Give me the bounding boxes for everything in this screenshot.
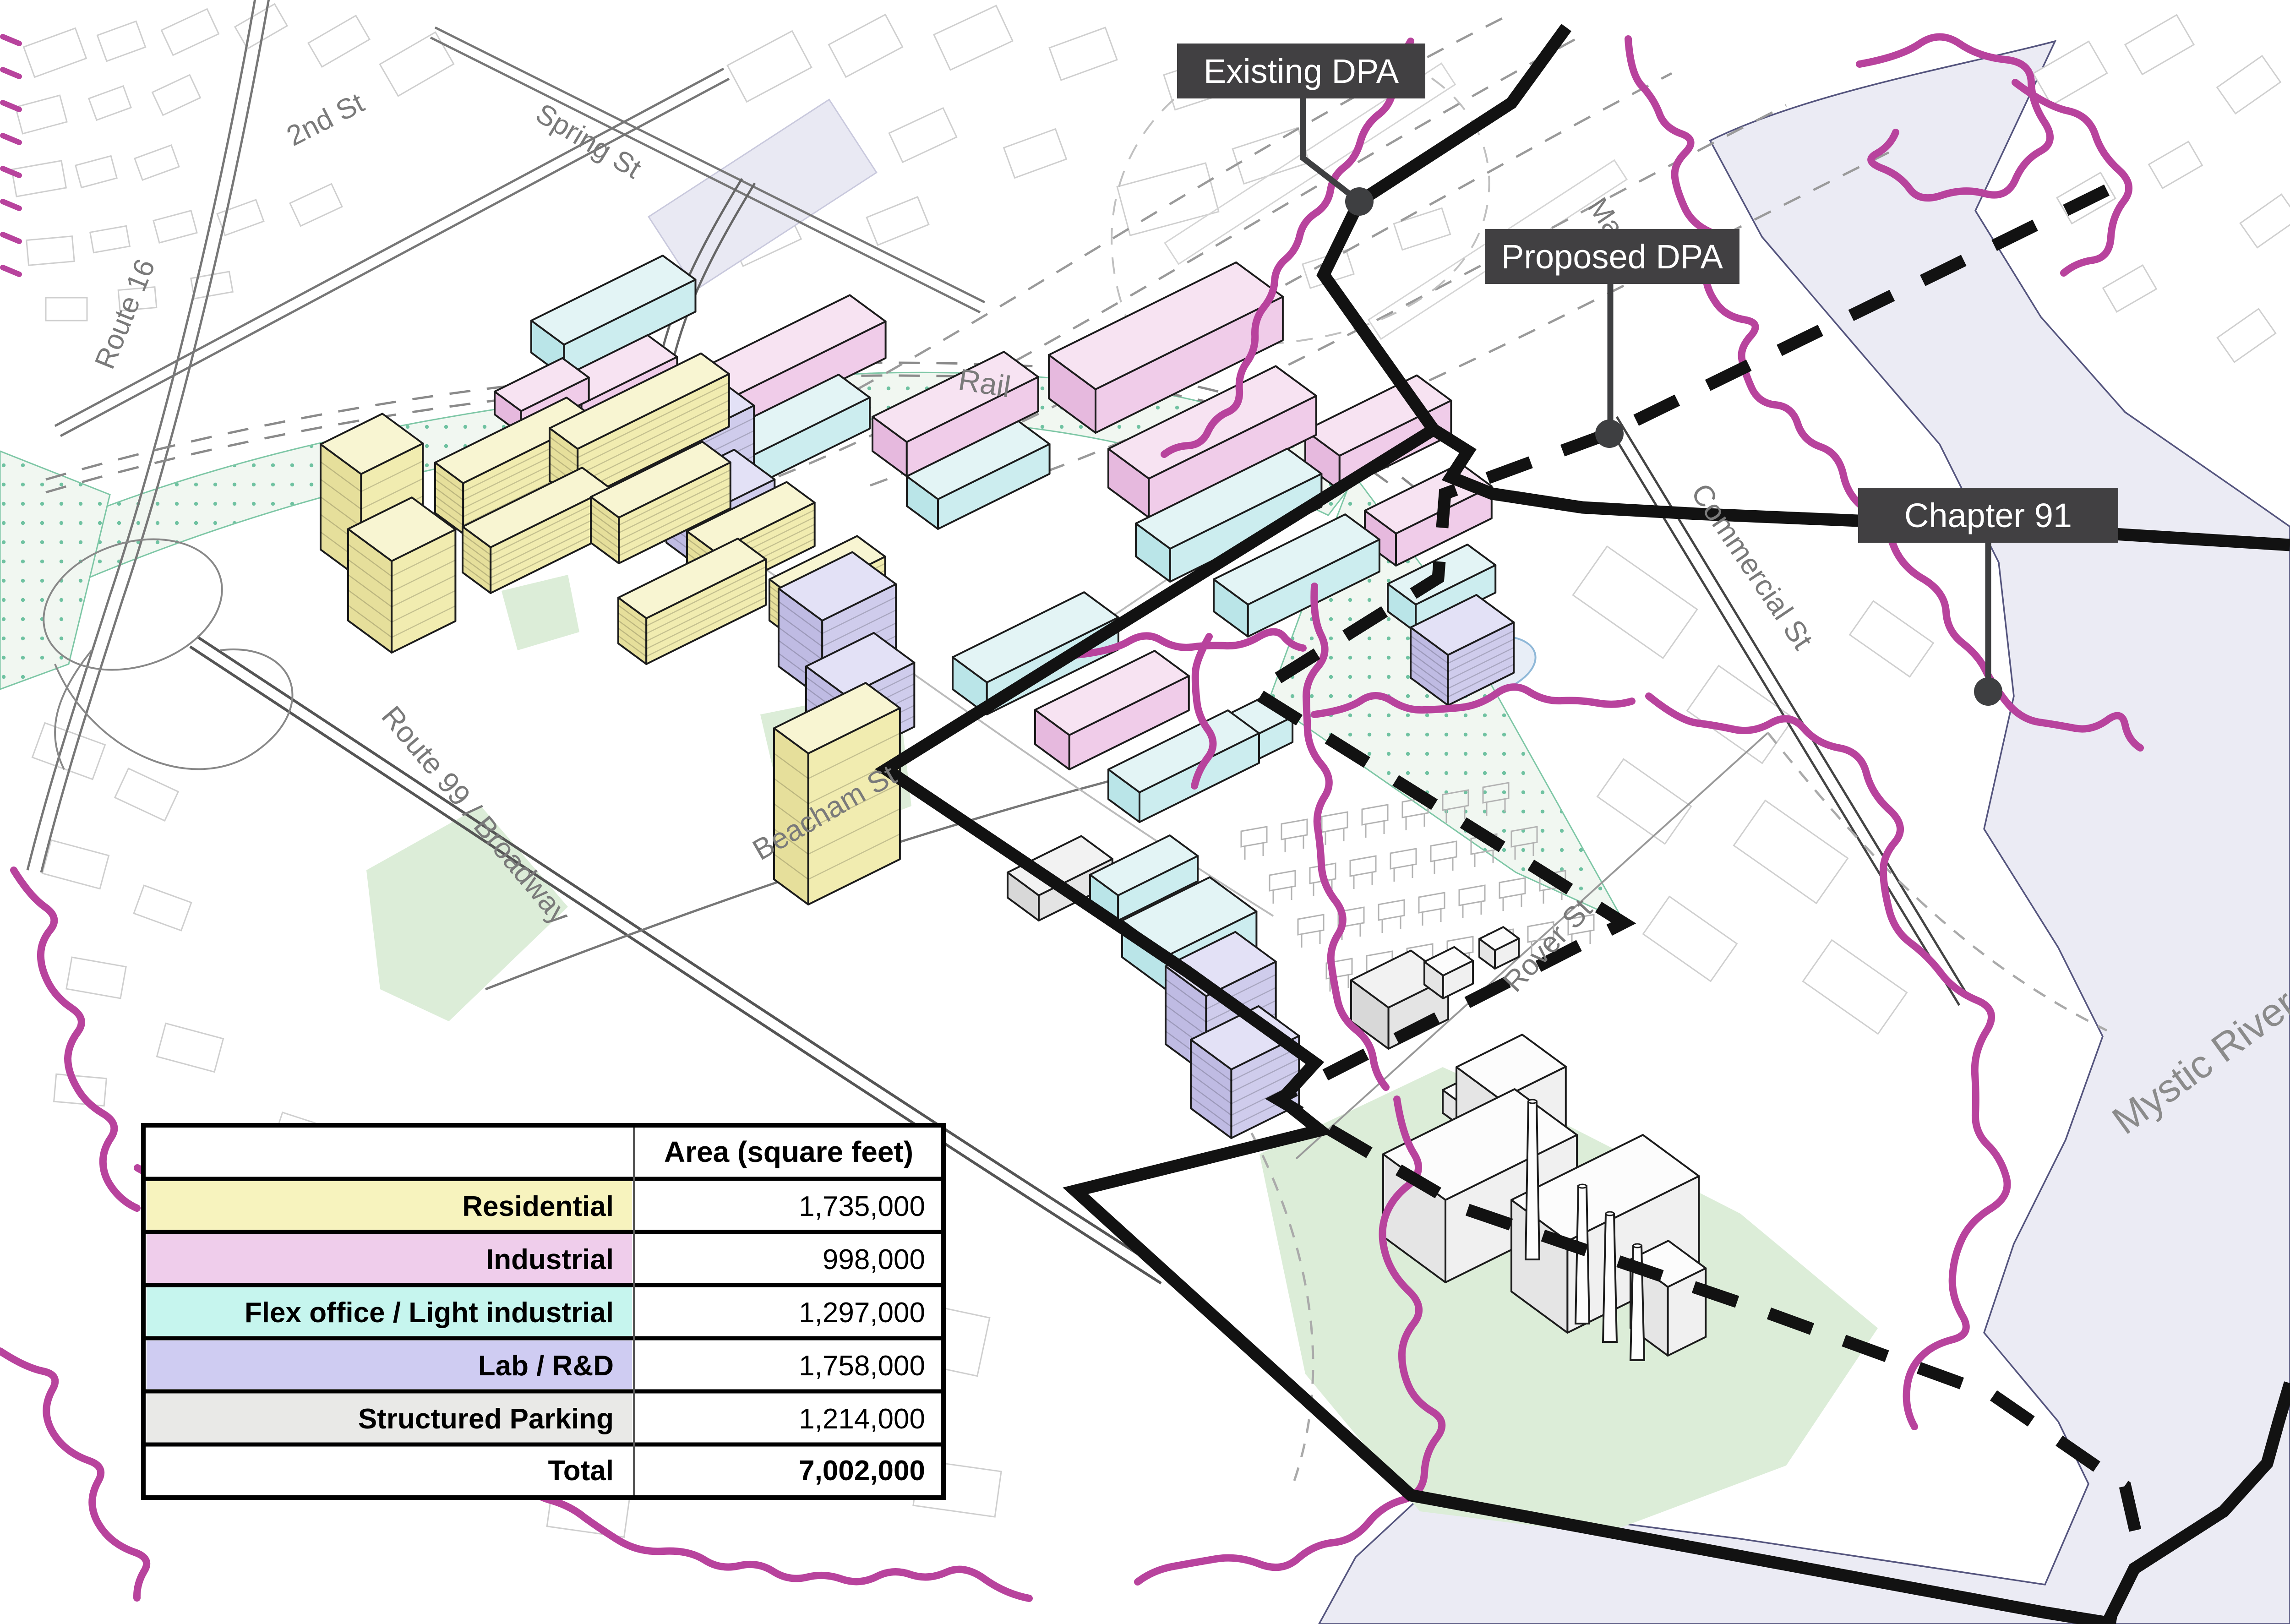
smokestack-top [1578, 1184, 1587, 1188]
row-label-lab-rd: Lab / R&D [478, 1350, 614, 1382]
legend-table: Area (square feet) Residential 1,735,000… [143, 1125, 943, 1498]
row-value-structured-parking: 1,214,000 [799, 1403, 925, 1435]
row-value-lab-rd: 1,758,000 [799, 1350, 925, 1382]
row-label-industrial: Industrial [486, 1244, 614, 1275]
smokestack-top [1606, 1212, 1614, 1215]
table-header: Area (square feet) [664, 1135, 913, 1168]
callout-label: Existing DPA [1204, 52, 1399, 90]
smokestack [1526, 1101, 1539, 1259]
row-label-structured-parking: Structured Parking [358, 1403, 614, 1435]
callout-anchor-dot [1345, 187, 1374, 216]
smokestack [1603, 1214, 1617, 1342]
callout-label: Proposed DPA [1501, 238, 1723, 276]
row-label-residential: Residential [462, 1191, 614, 1222]
callout-anchor-dot [1974, 677, 2002, 706]
building-footprint [46, 298, 87, 321]
row-label-flex-office: Flex office / Light industrial [245, 1297, 614, 1329]
callout-label: Chapter 91 [1904, 496, 2072, 534]
smokestack-top [1633, 1244, 1641, 1248]
row-value-total: 7,002,000 [799, 1455, 925, 1487]
row-value-flex-office: 1,297,000 [799, 1297, 925, 1329]
dpa-planning-map: 2nd St Spring St Route 16 Rail Route 99 … [0, 0, 2290, 1624]
row-value-residential: 1,735,000 [799, 1191, 925, 1222]
building-block-Y [348, 497, 455, 653]
row-value-industrial: 998,000 [823, 1244, 925, 1275]
callout-anchor-dot [1595, 420, 1624, 448]
row-label-total: Total [548, 1455, 614, 1487]
building-footprint [27, 236, 74, 266]
smokestack-top [1528, 1100, 1537, 1103]
